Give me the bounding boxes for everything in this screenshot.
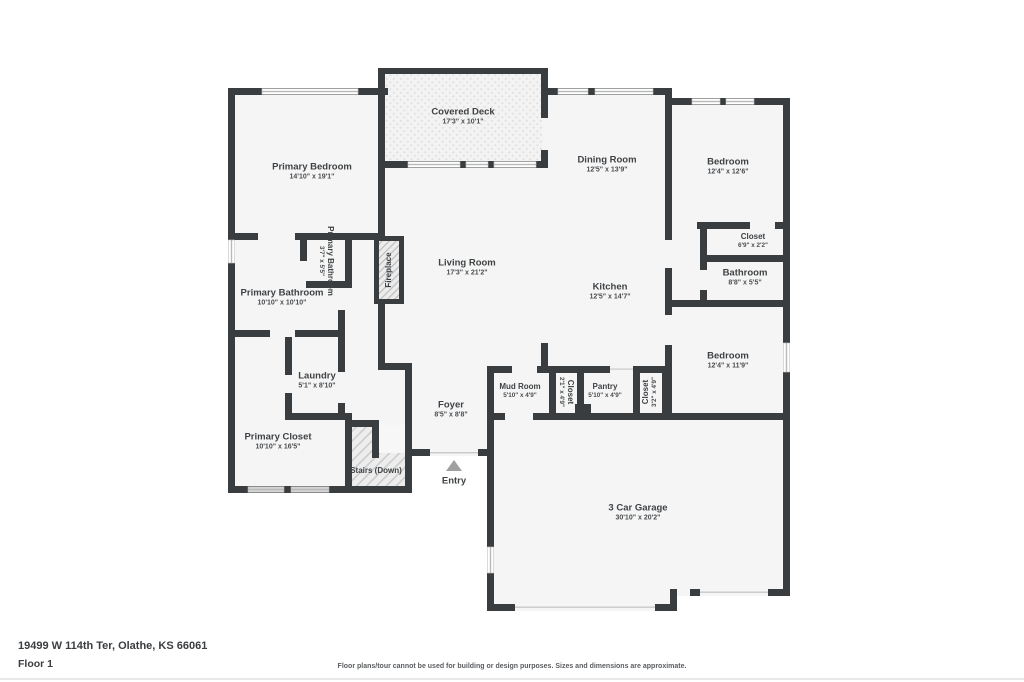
room-label-mud-room: Mud Room 5'10" x 4'9" [499,382,540,400]
room-label-entry: Entry [442,475,466,486]
room-label-dining-room: Dining Room 12'5" x 13'9" [577,155,636,176]
disclaimer-text: Floor plans/tour cannot be used for buil… [338,663,687,670]
room-label-primary-bathroom-toilet: Primary Bathroom 3'7" x 5'5" [317,226,335,296]
room-label-primary-closet: Primary Closet 10'10" x 16'5" [244,432,311,453]
bottom-divider [0,678,1024,680]
room-label-primary-bathroom: Primary Bathroom 10'10" x 10'10" [241,288,324,309]
room-label-closet-upper: Closet 6'9" x 2'2" [738,232,768,250]
room-label-living-room: Living Room 17'3" x 21'2" [438,258,496,279]
room-label-bedroom-upper: Bedroom 12'4" x 12'6" [707,157,749,178]
room-label-primary-bedroom: Primary Bedroom 14'10" x 19'1" [272,162,352,183]
garage-door-left-line [515,607,655,608]
room-interiors [228,72,790,611]
room-label-laundry: Laundry 5'1" x 8'10" [298,371,335,392]
room-label-pantry: Pantry 5'10" x 4'9" [588,382,621,400]
floor-plan-drawing [0,0,1024,682]
room-label-bedroom-lower: Bedroom 12'4" x 11'9" [707,351,749,372]
entry-arrow-icon [446,460,462,471]
pantry-door-line [610,369,633,370]
floor-label: Floor 1 [18,658,53,670]
room-label-foyer: Foyer 8'5" x 8'8" [434,400,467,421]
room-label-closet-pantry: Closet 3'2" x 4'9" [641,377,659,407]
room-area-primary-closet [228,413,352,493]
entry-door-line [430,452,478,453]
garage-door-right-line [700,592,768,593]
room-label-kitchen: Kitchen 12'5" x 14'7" [589,282,630,303]
room-label-fireplace: Fireplace [384,252,394,287]
stairs-landing [379,425,405,453]
room-label-garage: 3 Car Garage 30'10" x 20'2" [608,503,667,524]
room-label-stairs: Stairs (Down) [350,466,402,476]
room-label-bathroom: Bathroom 8'8" x 5'5" [723,268,768,289]
room-label-closet-mud: Closet 2'1" x 4'9" [557,377,575,407]
room-label-covered-deck: Covered Deck 17'3" x 10'1" [431,107,494,128]
floor-plan-page: Primary Bedroom 14'10" x 19'1" Covered D… [0,0,1024,682]
address-text: 19499 W 114th Ter, Olathe, KS 66061 [18,640,207,652]
room-area-garage-lower [487,596,677,611]
